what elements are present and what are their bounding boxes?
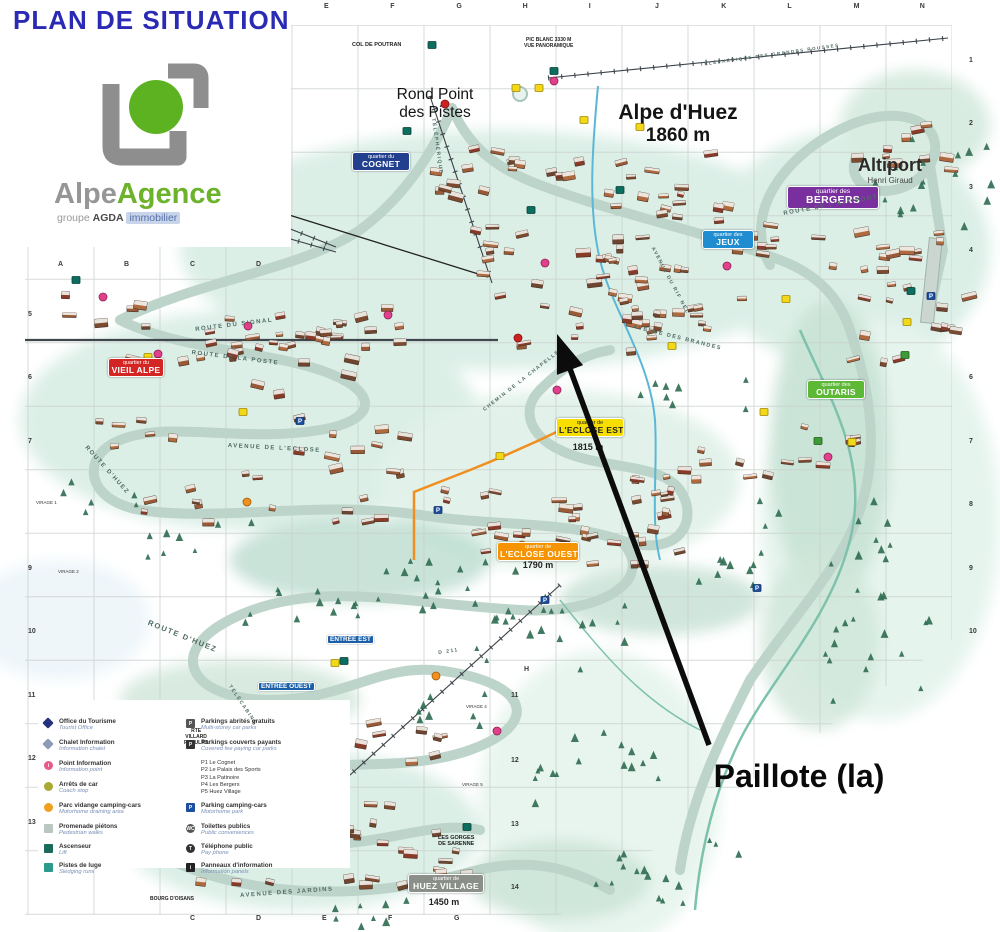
grid-number-left: 5 <box>28 311 32 318</box>
svg-text:P: P <box>298 419 302 425</box>
svg-text:P: P <box>929 294 933 300</box>
legend-item: Pistes de lugeSledging runs <box>44 862 184 882</box>
legend-label-en: Pay phone <box>201 850 253 857</box>
grid-letter-top: K <box>721 3 726 10</box>
legend-label-en: Coach stop <box>59 788 98 795</box>
brand-immobilier: immobilier <box>126 212 180 224</box>
grid-letter-bottom: F <box>388 915 392 922</box>
grid-number-inner: 12 <box>511 757 519 764</box>
legend-label-fr: Parkings abrités gratuits <box>201 718 275 725</box>
parking-entry: P4 Les Bergers <box>201 782 326 789</box>
gorges-sarenne-label: LES GORGESDE SARENNE <box>438 835 474 847</box>
legend-item: PParkings couverts payantsCovered fee pa… <box>186 739 326 759</box>
virage-2-label: VIRAGE 2 <box>58 569 79 574</box>
agency-subtitle: groupe AGDA immobilier <box>57 212 180 224</box>
motorhome-drain-icon <box>44 803 53 812</box>
svg-text:P: P <box>755 586 759 592</box>
agency-name: AlpeAgence <box>54 178 222 211</box>
grid-number-right: 9 <box>969 565 973 572</box>
brand-agda: AGDA <box>93 212 124 224</box>
legend-item: TTéléphone publicPay phone <box>186 843 326 863</box>
legend-label-fr: Parkings couverts payants <box>201 739 281 746</box>
legend-label-en: Information panels <box>201 869 272 876</box>
grid-letter-bottom: G <box>454 915 459 922</box>
parking-entry: P2 Le Palais des Sports <box>201 767 326 774</box>
grid-letter-top: I <box>589 3 591 10</box>
grid-letter-top: N <box>920 3 925 10</box>
brand-alpe: Alpe <box>54 178 117 210</box>
legend-item: Parc vidange camping-carsMotorhome drain… <box>44 802 184 822</box>
virage-4-label: VIRAGE 4 <box>466 704 487 709</box>
grid-number-left: 11 <box>28 692 35 699</box>
legend-label-en: Tourist Office <box>59 725 116 732</box>
entrance-east-label: ENTRÉE EST <box>327 635 374 644</box>
chalet-info-icon <box>42 738 53 749</box>
legend-label-en: Pedestrian walks <box>59 830 117 837</box>
page-title: PLAN DE SITUATION <box>13 5 290 36</box>
legend-label-fr: Toilettes publics <box>201 823 254 830</box>
legend-label-en: Motorhome draining area <box>59 809 141 816</box>
grid-number-inner: 14 <box>511 884 519 891</box>
brand-agence: Agence <box>117 178 222 210</box>
grid-number-right: 3 <box>969 184 973 191</box>
virage-5-label: VIRAGE 5 <box>462 782 483 787</box>
legend-label-en: Public conveniences <box>201 830 254 837</box>
grid-number-left: 13 <box>28 819 36 826</box>
rond-point-label: Rond Point des Pistes <box>372 86 498 122</box>
legend-label-fr: Point Information <box>59 760 111 767</box>
grid-letter-top: G <box>456 3 461 10</box>
grid-letter-inner: H <box>524 666 529 673</box>
coach-stop-icon <box>44 782 53 791</box>
legend-label-fr: Promenade piétons <box>59 823 117 830</box>
quartier-label-huez-village: quartier deHUEZ VILLAGE <box>408 874 484 893</box>
legend-label-fr: Arrêts de car <box>59 781 98 788</box>
grid-number-left: 7 <box>28 438 32 445</box>
motorhome-park-icon: P <box>186 803 195 812</box>
legend-label-fr: Parking camping-cars <box>201 802 267 809</box>
svg-text:P: P <box>436 508 440 514</box>
callout-paillote: Paillote (la) <box>694 758 904 795</box>
altitude-eclose-ouest: 1790 m <box>506 560 570 570</box>
legend-item: iPanneaux d'informationInformation panel… <box>186 862 326 882</box>
virage-1-label: VIRAGE 1 <box>36 500 57 505</box>
info-point-icon: i <box>44 761 53 770</box>
legend-label-en: Information point <box>59 767 111 774</box>
legend-item: WCToilettes publicsPublic conveniences <box>186 823 326 843</box>
legend-label-fr: Panneaux d'information <box>201 862 272 869</box>
grid-letter-bottom: E <box>322 915 327 922</box>
grid-number-right: 1 <box>969 57 973 64</box>
sledging-icon <box>44 863 53 872</box>
grid-number-left: 9 <box>28 565 32 572</box>
grid-letter-top: L <box>787 3 791 10</box>
altitude-eclose-est: 1815 m <box>558 442 618 452</box>
pic-blanc-label: PIC BLANC 3330 MVUE PANORAMIQUE <box>524 37 573 49</box>
legend-item: Office du TourismeTourist Office <box>44 718 184 738</box>
grid-number-left: 12 <box>28 755 36 762</box>
legend-label-fr: Parc vidange camping-cars <box>59 802 141 809</box>
legend-label-en: Lift <box>59 850 91 857</box>
grid-letter-top: F <box>390 3 394 10</box>
grid-letter-top: H <box>523 3 528 10</box>
free-parking-icon: P <box>186 719 195 728</box>
legend-item: PParking camping-carsMotorhome park <box>186 802 326 822</box>
parking-entry: P1 Le Cognet <box>201 760 326 767</box>
legend-label-fr: Ascenseur <box>59 843 91 850</box>
quartier-label-cognet: quartier duCOGNET <box>352 152 410 171</box>
grid-number-right: 2 <box>969 120 973 127</box>
brand-groupe: groupe <box>57 212 90 224</box>
grid-letter-top: E <box>324 3 329 10</box>
legend-item: Chalet InformationInformation chalet <box>44 739 184 759</box>
altiport-label: Altiport Henri Giraud <box>843 155 937 185</box>
grid-number-right: 4 <box>969 247 973 254</box>
bourg-oisans-label: BOURG D'OISANS <box>150 896 194 902</box>
legend-item: Arrêts de carCoach stop <box>44 781 184 801</box>
altitude-huez-village: 1450 m <box>412 897 476 907</box>
legend-item: Promenade piétonsPedestrian walks <box>44 823 184 843</box>
quartier-label-vieil-alpe: quartier duVIEIL ALPE <box>108 358 164 377</box>
grid-number-left: 10 <box>28 628 36 635</box>
grid-letter-top: J <box>655 3 659 10</box>
lift-icon <box>44 844 53 853</box>
legend-item: AscenseurLift <box>44 843 184 863</box>
phone-icon: T <box>186 844 195 853</box>
tourist-office-icon <box>42 717 53 728</box>
grid-letter-bottom: C <box>190 915 195 922</box>
quartier-label-jeux: quartier desJEUX <box>702 230 754 249</box>
grid-number-left: 6 <box>28 374 32 381</box>
grid-number-right: 6 <box>969 374 973 381</box>
legend-item: iPoint InformationInformation point <box>44 760 184 780</box>
legend-item: PParkings abrités gratuitsMulti-storey c… <box>186 718 326 738</box>
quartier-label-eclose-ouest: quartier deL'ECLOSE OUEST <box>497 542 579 561</box>
grid-number-right: 10 <box>969 628 977 635</box>
legend-label-en: Information chalet <box>59 746 115 753</box>
grid-letter-top: M <box>854 3 860 10</box>
legend-parkings-list: P1 Le CognetP2 Le Palais des SportsP3 La… <box>186 760 326 802</box>
entrance-west-label: ENTRÉE OUEST <box>258 682 315 691</box>
legend-label-en: Motorhome park <box>201 809 267 816</box>
grid-number-inner: 11 <box>511 692 518 699</box>
legend-label-fr: Téléphone public <box>201 843 253 850</box>
legend-label-en: Multi-storey car parks <box>201 725 275 732</box>
legend-label-fr: Pistes de luge <box>59 862 101 869</box>
grid-letter-left-row: A <box>58 261 63 268</box>
grid-number-right: 7 <box>969 438 973 445</box>
legend-label-en: Sledging runs <box>59 869 101 876</box>
quartier-label-eclose-est: quartier deL'ECLOSE EST <box>556 418 624 437</box>
toilets-icon: WC <box>186 824 195 833</box>
grid-letter-left-row: C <box>190 261 195 268</box>
parking-entry: P5 Huez Village <box>201 789 326 796</box>
quartier-label-outaris: quartier desOUTARIS <box>807 380 865 399</box>
legend-label-fr: Office du Tourisme <box>59 718 116 725</box>
pedestrian-walk-icon <box>44 824 53 833</box>
grid-letter-bottom: D <box>256 915 261 922</box>
grid-letter-left-row: B <box>124 261 129 268</box>
paid-parking-icon: P <box>186 740 195 749</box>
grid-number-right: 8 <box>969 501 973 508</box>
grid-number-inner: 13 <box>511 821 519 828</box>
info-panel-icon: i <box>186 863 195 872</box>
resort-name-label: Alpe d'Huez 1860 m <box>616 101 740 147</box>
col-de-poutran-label: COL DE POUTRAN <box>352 42 401 48</box>
situation-map: PPPPP PLAN DE SITUATION AlpeAgence group… <box>0 0 1000 932</box>
grid-letter-left-row: D <box>256 261 261 268</box>
parking-entry: P3 La Patinoire <box>201 775 326 782</box>
svg-text:P: P <box>543 598 547 604</box>
legend-label-fr: Chalet Information <box>59 739 115 746</box>
legend-label-en: Covered fee paying car parks <box>201 746 281 753</box>
